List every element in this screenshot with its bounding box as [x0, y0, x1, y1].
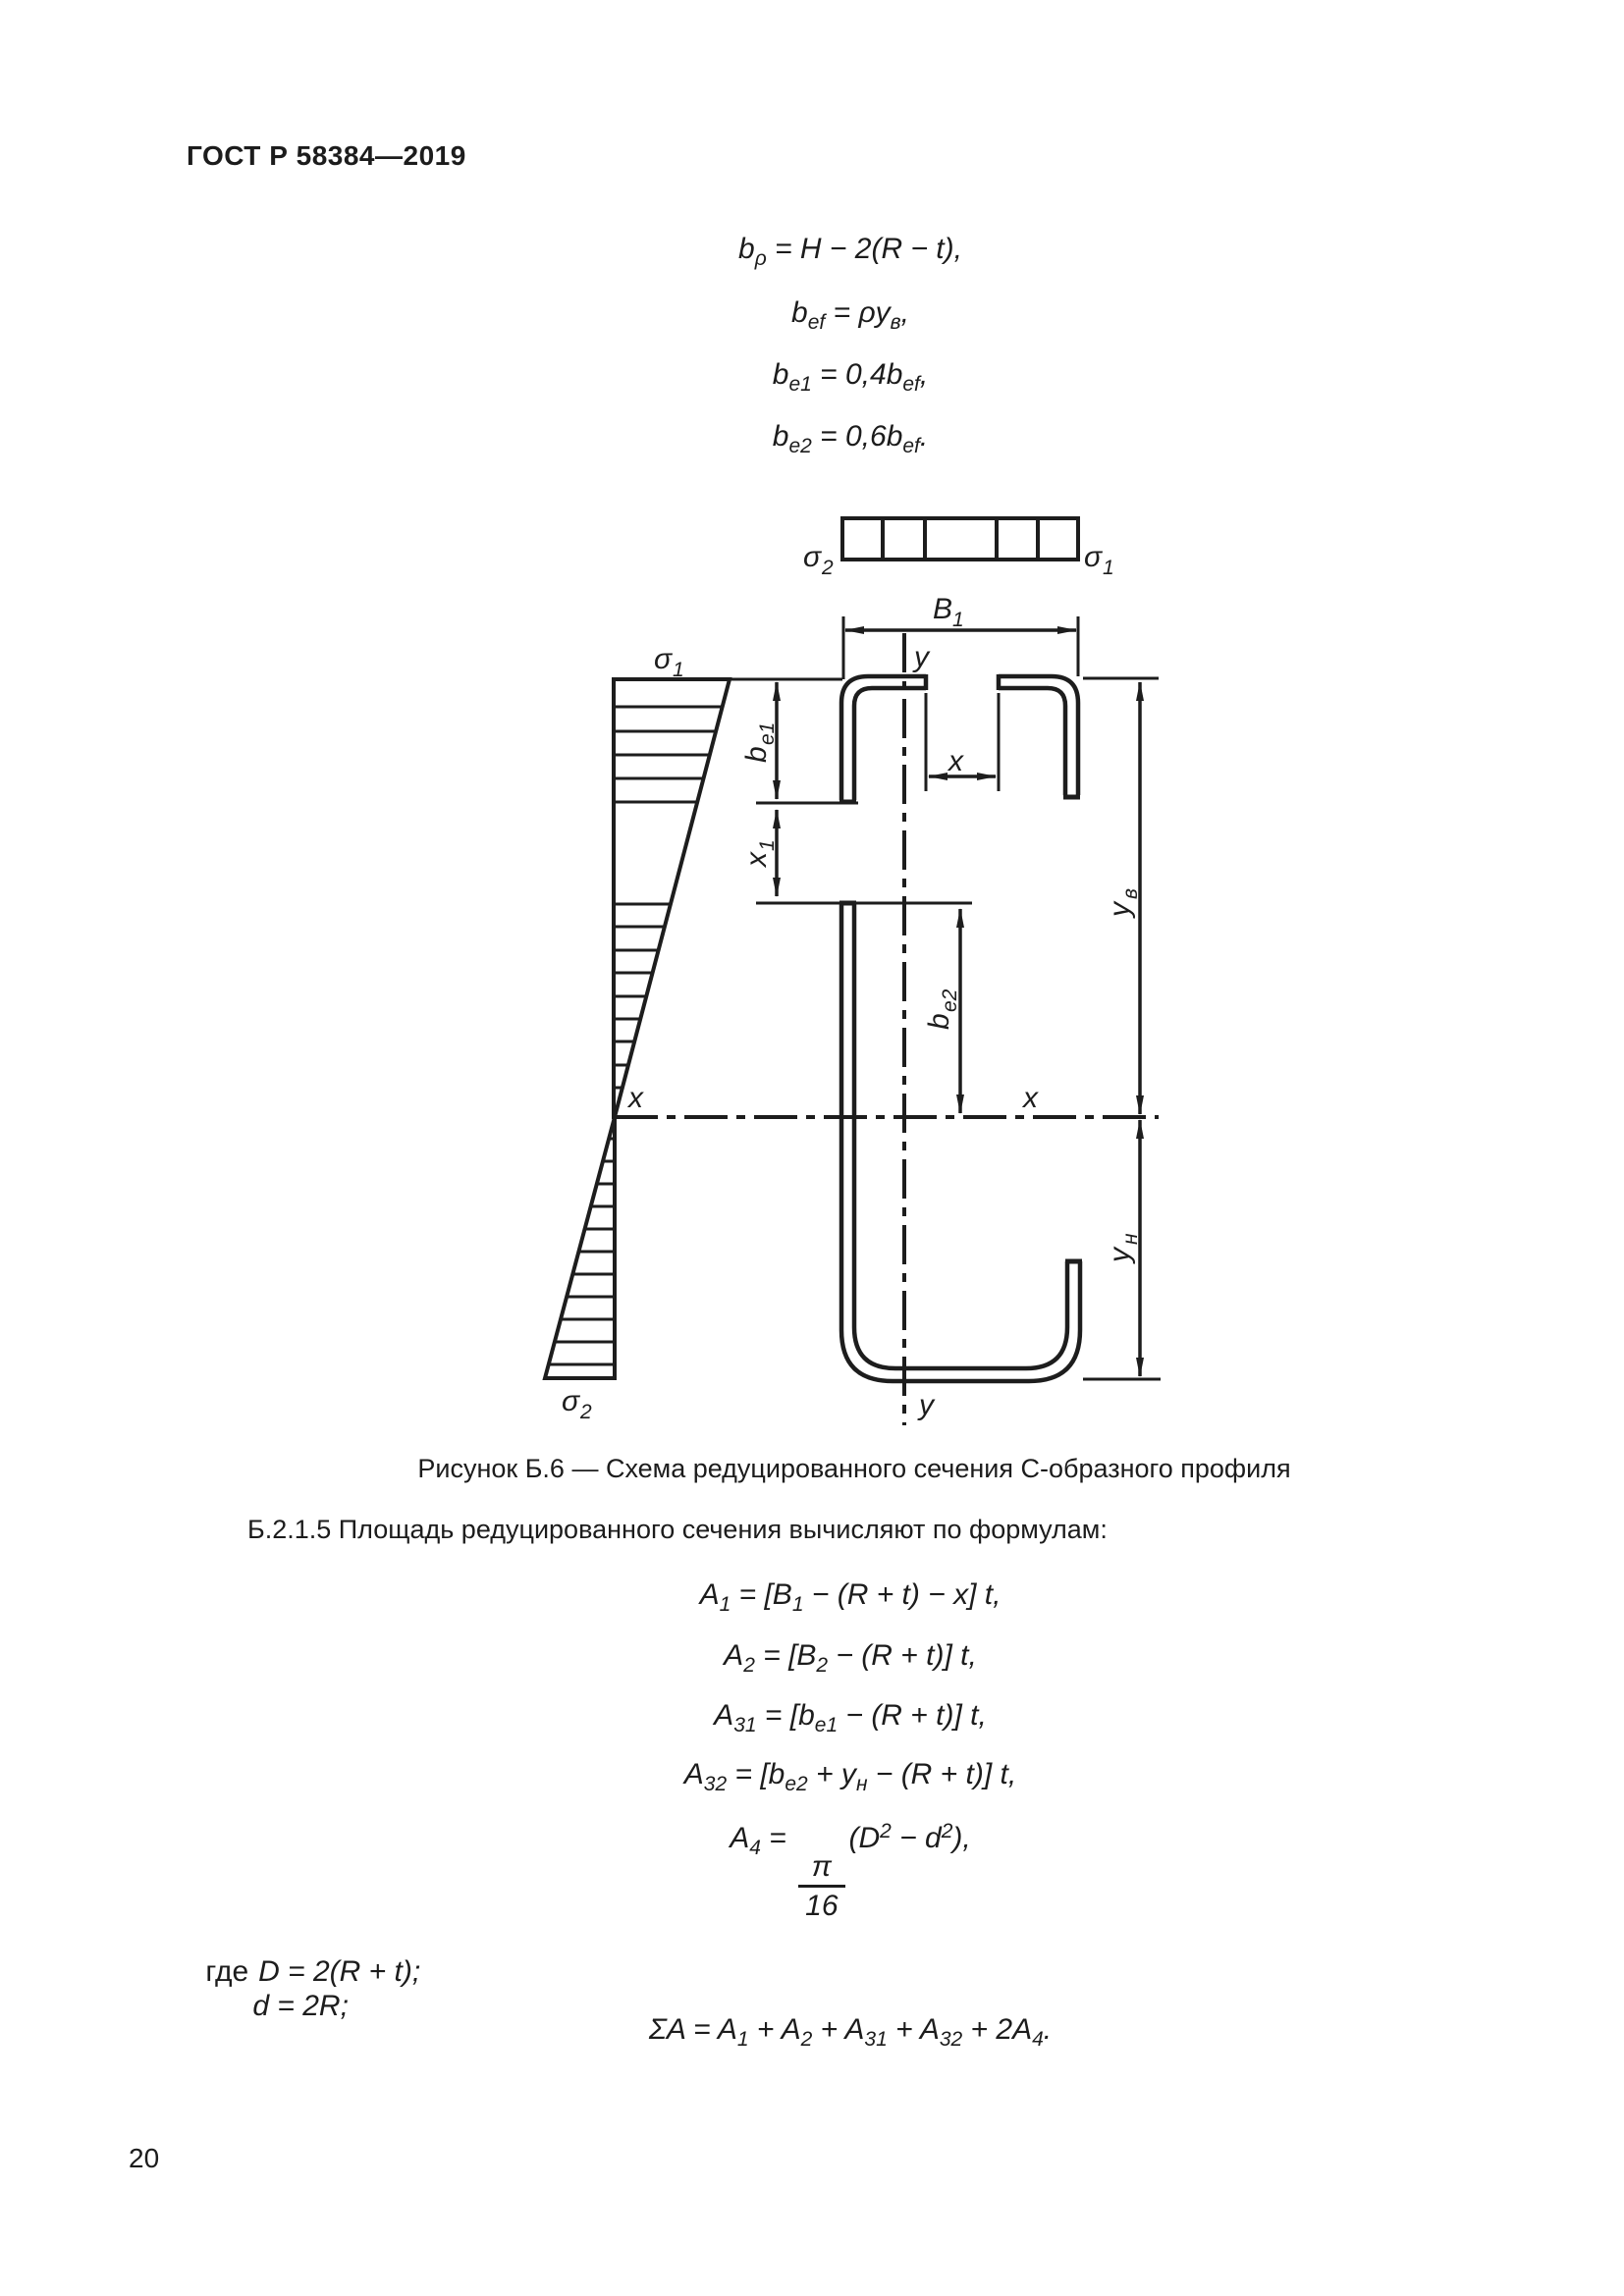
dimension-yv-yn [1083, 678, 1161, 1379]
yv-label: y в [1104, 888, 1142, 919]
svg-text:1: 1 [756, 839, 779, 851]
sigma1-stress-label: σ [654, 643, 674, 675]
svg-text:b: b [923, 1013, 955, 1030]
stress-diagram-bottom [545, 1117, 615, 1378]
sigma2-strip-label: σ [803, 541, 823, 573]
formula-a2: A2 = [B2 − (R + t)] t, [261, 1638, 1439, 1683]
svg-text:x: x [740, 851, 773, 869]
svg-text:y: y [1104, 900, 1136, 919]
section-paragraph: Б.2.1.5 Площадь редуцированного сечения … [247, 1515, 1108, 1545]
svg-text:b: b [740, 746, 773, 763]
x-axis-right-label: x [1021, 1082, 1039, 1114]
B1-label: B [933, 593, 952, 625]
page-number: 20 [129, 2143, 159, 2174]
document-page: ГОСТ Р 58384—2019 bρ = H − 2(R − t), bef… [0, 0, 1624, 2296]
svg-text:e1: e1 [756, 722, 779, 745]
x-gap-label: x [947, 745, 964, 777]
yn-label: y н [1104, 1233, 1142, 1264]
svg-text:в: в [1119, 888, 1142, 899]
svg-text:2: 2 [579, 1401, 592, 1423]
formula-a32: A32 = [be2 + yн − (R + t)] t, [261, 1757, 1439, 1802]
x-axis-left-label: x [626, 1082, 644, 1114]
svg-text:1: 1 [952, 609, 964, 631]
svg-text:1: 1 [1103, 557, 1114, 579]
formula-a4: A4 = π16(D2 − d2), [261, 1814, 1439, 1922]
y-axis-top-label: y [912, 641, 931, 673]
be1-label: b e1 [740, 722, 779, 763]
stress-diagram-top [614, 679, 730, 1117]
be2-label: b e2 [923, 988, 961, 1030]
svg-text:н: н [1119, 1233, 1142, 1245]
x1-label: x 1 [740, 839, 779, 869]
sigma2-stress-label: σ [562, 1385, 581, 1417]
svg-text:y: y [1104, 1246, 1136, 1264]
svg-text:e2: e2 [939, 988, 961, 1012]
formula-sum-a: ΣA = A1 + A2 + A31 + A32 + 2A4. [261, 2012, 1439, 2057]
svg-text:2: 2 [821, 557, 834, 579]
svg-text:1: 1 [673, 659, 684, 681]
reduced-flange-strip [842, 518, 1078, 560]
dimension-be1-x1 [614, 679, 972, 903]
formula-a31: A31 = [be1 − (R + t)] t, [261, 1698, 1439, 1743]
sigma1-strip-label: σ [1084, 541, 1104, 573]
formula-a1: A1 = [B1 − (R + t) − x] t, [261, 1577, 1439, 1623]
y-axis-bottom-label: y [917, 1389, 936, 1421]
figure-caption: Рисунок Б.6 — Схема редуцированного сече… [265, 1454, 1443, 1484]
